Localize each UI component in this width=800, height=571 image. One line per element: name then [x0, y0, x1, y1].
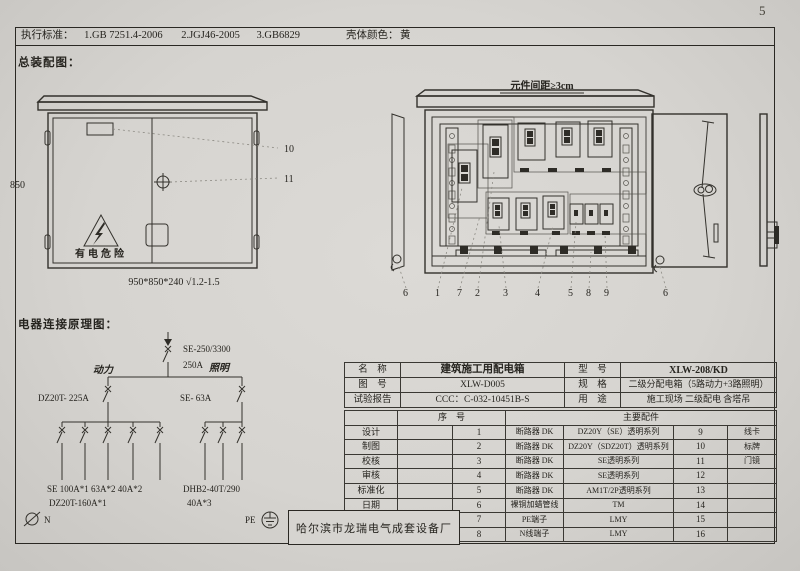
- callout-6a: 6: [403, 288, 408, 299]
- name-label: 名 称: [345, 363, 401, 378]
- item-part: 断路器 DK: [506, 469, 564, 484]
- main-breaker-model: SE-250/3300: [183, 344, 231, 354]
- standards-bar: 执行标准： 1.GB 7251.4-2006 2.JGJ46-2005 3.GB…: [15, 27, 775, 46]
- item-part2: 标牌: [728, 440, 777, 455]
- item-desc: DZ20Y（SDZ20T）透明系列: [564, 440, 674, 455]
- size-value: 二级分配电箱（5路动力+3路照明）: [621, 378, 777, 393]
- cabinet-front-view: 10 11 有电危险 850 950*850*240 √1.2-1.5: [8, 88, 308, 292]
- item-desc: LMY: [564, 527, 674, 542]
- manufacturer-box: 哈尔滨市龙瑞电气成套设备厂: [288, 510, 460, 545]
- lighting-breaker-label: SE- 63A: [180, 393, 212, 403]
- sign-standardize: 标准化: [345, 483, 398, 498]
- item-part: 断路器 DK: [506, 483, 564, 498]
- size-dimension: 950*850*240 √1.2-1.5: [128, 277, 219, 288]
- model-value: XLW-208/KD: [621, 363, 777, 378]
- test-report-value: CCC：C-032-10451B-S: [401, 393, 565, 408]
- item-part2: 线卡: [728, 425, 777, 440]
- breakers-bottom-row: [488, 196, 613, 230]
- shell-color-value: 黄: [400, 28, 411, 44]
- standard-3: 3.GB6829: [256, 28, 299, 44]
- side-panel-view: [760, 114, 779, 266]
- sign-blank: [398, 454, 453, 469]
- parts-header: 主要配件: [506, 411, 777, 426]
- page-number: 5: [759, 3, 766, 19]
- item-desc: TM: [564, 498, 674, 513]
- item-row: 校核 3 断路器 DK SE透明系列 11 门镜: [345, 454, 777, 469]
- item-part2: [728, 527, 777, 542]
- item-no2: 11: [674, 454, 728, 469]
- lighting-branch-label: 照明: [208, 362, 231, 374]
- drawing-no-value: XLW-D005: [401, 378, 565, 393]
- item-no: 5: [453, 483, 506, 498]
- mounting-rails: [446, 128, 632, 246]
- lighting-outputs-line2: 40A*3: [187, 498, 212, 508]
- item-no: 3: [453, 454, 506, 469]
- standard-1: 1.GB 7251.4-2006: [84, 28, 162, 44]
- callout-1: 1: [435, 288, 440, 299]
- item-no2: 13: [674, 483, 728, 498]
- item-no2: 10: [674, 440, 728, 455]
- item-desc: DZ20Y（SE）透明系列: [564, 425, 674, 440]
- cabinet-roof: [38, 96, 267, 110]
- item-part2: [728, 498, 777, 513]
- test-report-label: 试验报告: [345, 393, 401, 408]
- item-row: 设计 1 断路器 DK DZ20Y（SE）透明系列 9 线卡: [345, 425, 777, 440]
- danger-text: 有电危险: [75, 247, 127, 260]
- standards-label: 执行标准：: [21, 28, 74, 44]
- spacing-note-group: 元件间距≥3cm: [500, 79, 584, 93]
- sign-check: 校核: [345, 454, 398, 469]
- item-no2: 15: [674, 513, 728, 528]
- lock-box: [146, 224, 168, 246]
- item-part2: [728, 469, 777, 484]
- size-label: 规 格: [565, 378, 621, 393]
- item-desc: AM1T/2P透明系列: [564, 483, 674, 498]
- item-part2: [728, 513, 777, 528]
- callout-10: 10: [284, 144, 294, 155]
- name-value: 建筑施工用配电箱: [401, 363, 565, 378]
- cabinet-body: [48, 113, 257, 268]
- callout-5: 5: [568, 288, 573, 299]
- item-part: 断路器 DK: [506, 440, 564, 455]
- item-no: 1: [453, 425, 506, 440]
- item-part: PE端子: [506, 513, 564, 528]
- power-outputs-line2: DZ20T-160A*1: [49, 498, 107, 508]
- item-row: 标准化 5 断路器 DK AM1T/2P透明系列 13: [345, 483, 777, 498]
- callout-7: 7: [457, 288, 462, 299]
- lighting-branch: [237, 377, 245, 422]
- power-outgoing-circuits: [57, 422, 163, 480]
- callout-6b: 6: [663, 288, 668, 299]
- items-header-row: 序 号 主要配件: [345, 411, 777, 426]
- item-part: 断路器 DK: [506, 454, 564, 469]
- callout-3: 3: [503, 288, 508, 299]
- main-breaker-rating: 250A: [183, 360, 204, 370]
- item-desc: SE透明系列: [564, 454, 674, 469]
- neutral-symbol: [24, 512, 40, 526]
- sign-blank: [398, 425, 453, 440]
- power-branch-label: 动力: [93, 364, 114, 376]
- item-desc: LMY: [564, 513, 674, 528]
- item-part: 裸铜加蜡管线: [506, 498, 564, 513]
- item-desc: SE透明系列: [564, 469, 674, 484]
- item-row: 审核 4 断路器 DK SE透明系列 12: [345, 469, 777, 484]
- sign-design: 设计: [345, 425, 398, 440]
- item-no: 2: [453, 440, 506, 455]
- busbar-row-1: [520, 168, 611, 172]
- info-row-test: 试验报告 CCC：C-032-10451B-S 用 途 施工现场 二级配电 含塔…: [345, 393, 777, 408]
- lighting-outputs-line1: DHB2-40T/290: [183, 484, 240, 494]
- open-view-callouts: 6 1 7 2 3 4 5 8 9 6: [390, 288, 790, 302]
- callout-2: 2: [475, 288, 480, 299]
- vent-louver: [87, 123, 113, 135]
- assembly-section-title: 总装配图：: [18, 54, 81, 70]
- serial-header: 序 号: [398, 411, 506, 426]
- info-row-drawing: 图 号 XLW-D005 规 格 二级分配电箱（5路动力+3路照明）: [345, 378, 777, 393]
- leader-to-callout-10: [113, 129, 278, 148]
- open-cabinet-body: [425, 110, 653, 273]
- item-no2: 14: [674, 498, 728, 513]
- electric-danger-sign: [84, 215, 118, 246]
- power-branch: [103, 377, 111, 422]
- leader-to-callout-11: [170, 178, 278, 182]
- model-label: 型 号: [565, 363, 621, 378]
- height-dimension: 850: [10, 180, 25, 191]
- right-open-door: [652, 114, 727, 272]
- door-handle-icon: [154, 173, 172, 191]
- item-part2: 门镜: [728, 454, 777, 469]
- power-outputs-line1: SE 100A*1 63A*2 40A*2: [47, 484, 142, 494]
- lighting-outgoing-circuits: [200, 422, 245, 480]
- right-door-stay: [656, 256, 664, 264]
- item-no: 8: [453, 527, 506, 542]
- info-row-name: 名 称 建筑施工用配电箱 型 号 XLW-208/KD: [345, 363, 777, 378]
- spec-info-table: 名 称 建筑施工用配电箱 型 号 XLW-208/KD 图 号 XLW-D005…: [344, 362, 777, 408]
- item-no2: 9: [674, 425, 728, 440]
- callout-11: 11: [284, 174, 294, 185]
- callout-8: 8: [586, 288, 591, 299]
- manufacturer-name: 哈尔滨市龙瑞电气成套设备厂: [296, 520, 452, 536]
- main-incoming: [163, 332, 172, 377]
- sign-blank: [398, 440, 453, 455]
- item-no: 7: [453, 513, 506, 528]
- left-door-edge: [391, 114, 404, 271]
- item-no2: 16: [674, 527, 728, 542]
- sign-blank: [398, 483, 453, 498]
- item-part2: [728, 483, 777, 498]
- callout-9: 9: [604, 288, 609, 299]
- use-label: 用 途: [565, 393, 621, 408]
- backplates: [448, 117, 646, 234]
- pe-label: PE: [245, 515, 256, 525]
- item-no2: 12: [674, 469, 728, 484]
- blank-header-cell: [345, 411, 398, 426]
- sign-review: 审核: [345, 469, 398, 484]
- item-part: 断路器 DK: [506, 425, 564, 440]
- neutral-label: N: [44, 515, 51, 525]
- drawing-no-label: 图 号: [345, 378, 401, 393]
- sign-draft: 制图: [345, 440, 398, 455]
- drawing-sheet: 5 执行标准： 1.GB 7251.4-2006 2.JGJ46-2005 3.…: [0, 0, 800, 571]
- use-value: 施工现场 二级配电 含塔吊: [621, 393, 777, 408]
- item-part: N线端子: [506, 527, 564, 542]
- standard-2: 2.JGJ46-2005: [181, 28, 240, 44]
- item-no: 4: [453, 469, 506, 484]
- earth-symbol: [262, 512, 278, 528]
- power-breaker-label: DZ20T- 225A: [38, 393, 89, 403]
- callout-4: 4: [535, 288, 540, 299]
- shell-color-label: 壳体颜色：: [346, 28, 399, 44]
- sign-blank: [398, 469, 453, 484]
- item-row: 制图 2 断路器 DK DZ20Y（SDZ20T）透明系列 10 标牌: [345, 440, 777, 455]
- cabinet-open-view: 元件间距≥3cm: [390, 76, 790, 306]
- item-no: 6: [453, 498, 506, 513]
- breakers-top-row: [452, 121, 612, 202]
